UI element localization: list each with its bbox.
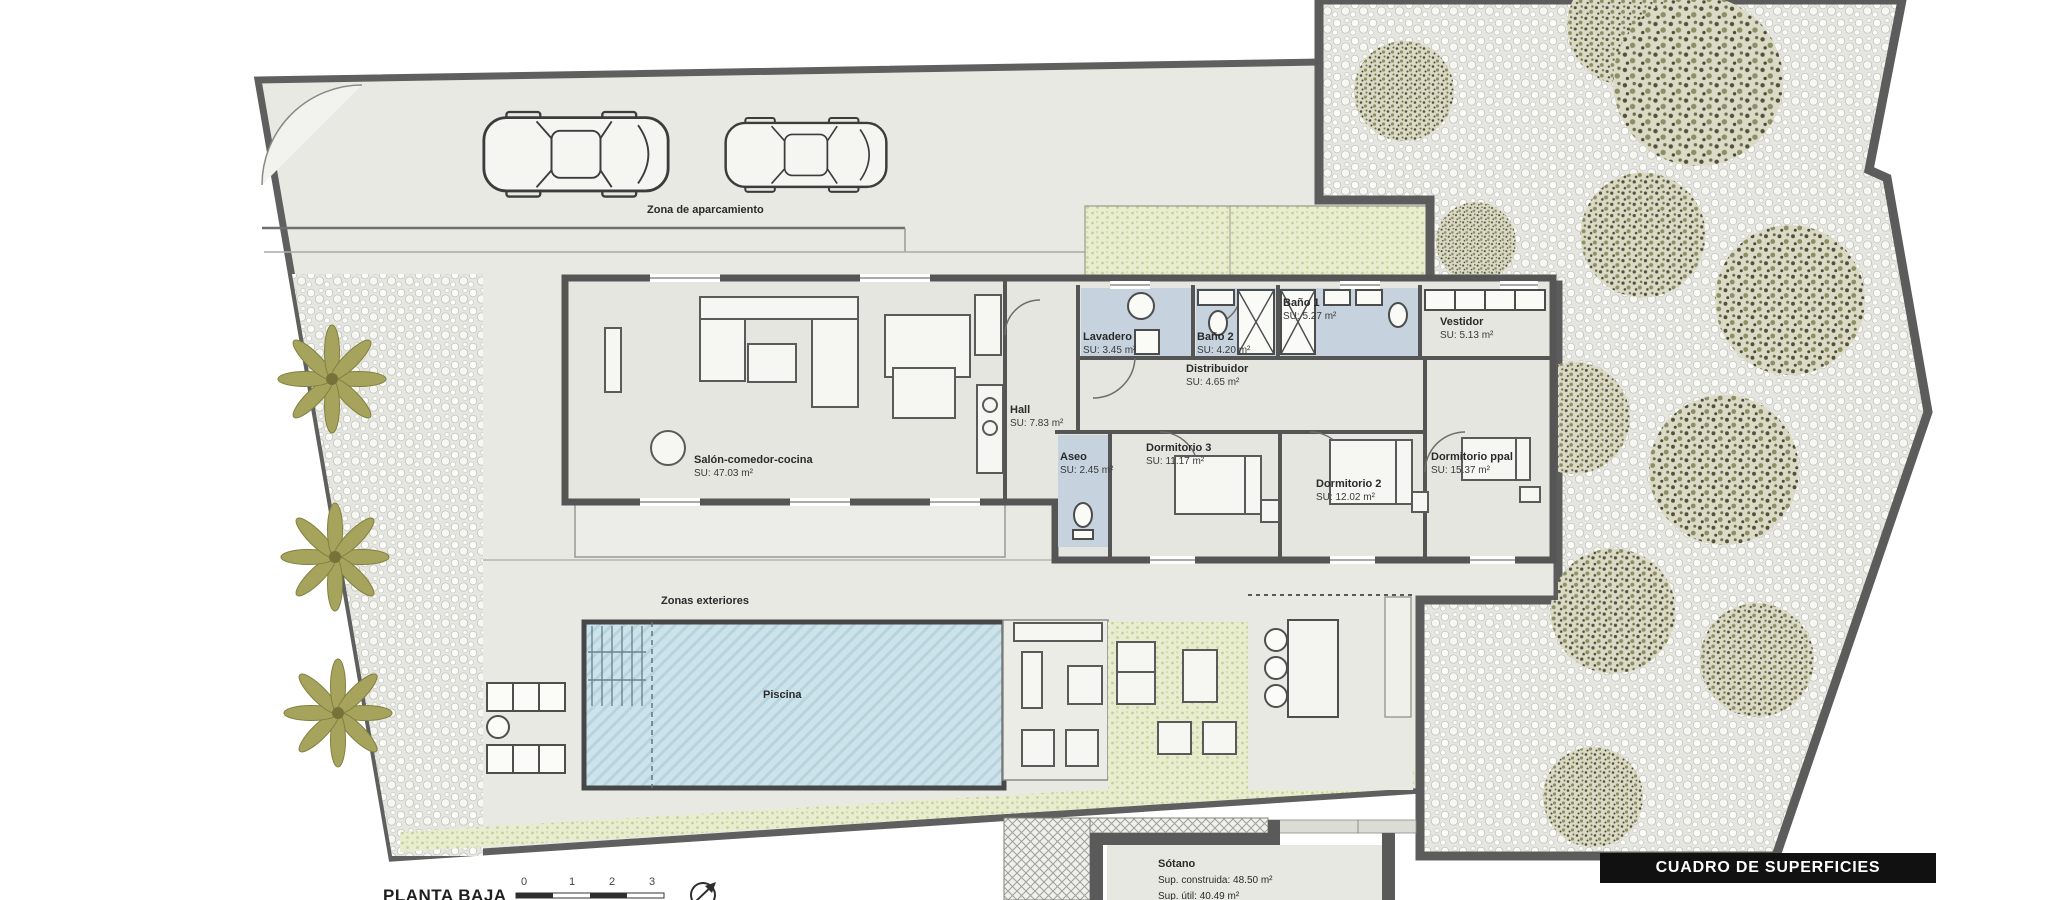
tree-icon <box>1613 0 1783 166</box>
room-label-dormitorio3: Dormitorio 3 SU: 11.17 m² <box>1146 441 1211 468</box>
basement-title: Sótano <box>1158 858 1195 870</box>
palm-tree-icon <box>278 325 386 433</box>
room-label-dormitorio-ppal: Dormitorio ppal SU: 15.37 m² <box>1431 450 1513 477</box>
surface-table-banner: CUADRO DE SUPERFICIES <box>1600 853 1936 883</box>
tree-icon <box>1700 603 1814 717</box>
scale-tick-3: 3 <box>649 876 655 888</box>
basement-usable-area: Sup. útil: 40.49 m² <box>1158 891 1239 900</box>
room-label-aseo: Aseo SU: 2.45 m² <box>1060 450 1113 477</box>
room-label-vestidor: Vestidor SU: 5.13 m² <box>1440 315 1493 342</box>
basement-plan <box>1004 818 1416 900</box>
label-piscina: Piscina <box>763 688 802 702</box>
plan-title: PLANTA BAJA <box>383 886 507 900</box>
label-zonas-exteriores: Zonas exteriores <box>661 594 749 608</box>
scale-bar <box>516 893 664 898</box>
north-arrow-icon <box>691 882 716 900</box>
room-label-dormitorio2: Dormitorio 2 SU: 12.02 m² <box>1316 477 1381 504</box>
room-label-bano2: Baño 2 SU: 4.20 m² <box>1197 330 1250 357</box>
room-label-salon: Salón-comedor-cocina SU: 47.03 m² <box>694 453 813 480</box>
floor-plan: Zona de aparcamiento Salón-comedor-cocin… <box>0 0 2048 900</box>
tree-icon <box>1649 395 1799 545</box>
terrace-seating <box>1003 595 1413 790</box>
scale-tick-0: 0 <box>521 876 527 888</box>
room-label-lavadero: Lavadero SU: 3.45 m² <box>1083 330 1136 357</box>
room-label-bano1: Baño 1 SU: 5.27 m² <box>1283 296 1336 323</box>
pool <box>584 622 1004 788</box>
tree-icon <box>1551 549 1676 674</box>
tree-icon <box>1715 225 1865 375</box>
palm-tree-icon <box>281 503 389 611</box>
scale-tick-2: 2 <box>609 876 615 888</box>
planting-strip-top <box>1085 206 1430 278</box>
tree-icon <box>1543 747 1643 847</box>
palm-tree-icon <box>284 659 392 767</box>
room-label-distribuidor: Distribuidor SU: 4.65 m² <box>1186 362 1248 389</box>
floor-plan-drawing <box>0 0 2048 900</box>
scale-tick-1: 1 <box>569 876 575 888</box>
car-icon <box>726 118 887 192</box>
room-label-hall: Hall SU: 7.83 m² <box>1010 403 1063 430</box>
basement-built-area: Sup. construida: 48.50 m² <box>1158 875 1273 886</box>
tree-icon <box>1581 173 1706 298</box>
car-icon <box>484 112 668 197</box>
porch <box>575 502 1005 557</box>
room-label-parking: Zona de aparcamiento <box>647 203 764 217</box>
tree-icon <box>1436 202 1516 282</box>
tree-icon <box>1354 41 1454 141</box>
